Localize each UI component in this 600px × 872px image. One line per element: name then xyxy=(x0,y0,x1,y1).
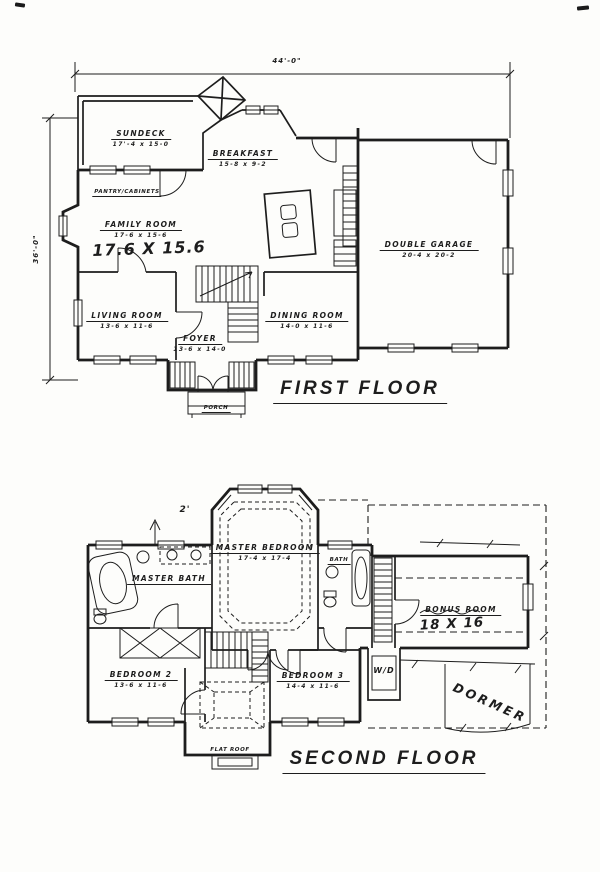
master-bedroom-name: MASTER BEDROOM xyxy=(211,543,320,554)
first-floor-title: FIRST FLOOR xyxy=(273,378,447,404)
overall-width-dimension: 44'-0" xyxy=(272,57,301,65)
sundeck-name: SUNDECK xyxy=(111,129,171,140)
double-garage-size: 20-4 x 20-2 xyxy=(380,252,479,259)
flat-roof-dashed xyxy=(200,682,264,728)
living-room-name: LIVING ROOM xyxy=(86,311,168,322)
bedroom-3-name: BEDROOM 3 xyxy=(277,671,350,682)
tray-ceiling-dashed xyxy=(220,502,310,630)
bedroom-3-size: 14-4 x 11-6 xyxy=(277,683,350,690)
room-label-breakfast: BREAKFAST 15-8 x 9-2 xyxy=(208,141,278,168)
living-room-size: 13-6 x 11-6 xyxy=(86,323,168,330)
room-label-bedroom-3: BEDROOM 3 14-4 x 11-6 xyxy=(277,663,350,690)
laundry-closet-label: W/D xyxy=(373,666,394,675)
second-floor-title: SECOND FLOOR xyxy=(282,748,485,774)
bedroom-2-name: BEDROOM 2 xyxy=(105,670,178,681)
porch-name: PORCH xyxy=(202,405,231,413)
overall-depth-dimension: 36'-0" xyxy=(32,234,40,263)
floor-plan-linework xyxy=(0,0,600,872)
sundeck-size: 17'-4 x 15-0 xyxy=(111,141,171,148)
flat-roof-text: FLAT ROOF xyxy=(208,747,251,755)
floor-plan-sheet: { "drawing": { "ink_color": "#1d1d1d", "… xyxy=(0,0,600,872)
room-label-master-bath: MASTER BATH xyxy=(127,566,211,585)
room-label-bedroom-2: BEDROOM 2 13-6 x 11-6 xyxy=(105,662,178,689)
room-label-living-room: LIVING ROOM 13-6 x 11-6 xyxy=(86,303,168,330)
room-label-sundeck: SUNDECK 17'-4 x 15-0 xyxy=(111,121,171,148)
porch-roof-tab xyxy=(212,755,258,769)
bay-offset-annotation: 2' xyxy=(179,505,190,515)
doors xyxy=(118,138,496,392)
family-room-handwritten-size: 17.6 X 15.6 xyxy=(92,237,206,260)
breakfast-name: BREAKFAST xyxy=(208,149,278,160)
master-bath-name: MASTER BATH xyxy=(127,574,211,585)
double-garage-name: DOUBLE GARAGE xyxy=(380,240,479,251)
room-label-porch: PORCH xyxy=(202,394,231,413)
master-bedroom-size: 17-4 x 17-4 xyxy=(211,555,320,562)
family-room-name: FAMILY ROOM xyxy=(100,220,182,231)
breakfast-size: 15-8 x 9-2 xyxy=(208,161,278,168)
bonus-room-handwritten-size: 18 X 16 xyxy=(419,614,484,633)
bedroom-2-size: 13-6 x 11-6 xyxy=(105,682,178,689)
closet-bifold xyxy=(120,628,200,658)
room-label-bonus-room: BONUS ROOM xyxy=(420,597,501,616)
foyer-size: 13-6 x 14-0 xyxy=(173,346,226,353)
flat-roof-annotation: FLAT ROOF xyxy=(208,736,251,755)
bonus-room-name: BONUS ROOM xyxy=(420,605,501,616)
pantry-note-text: PANTRY/CABINETS xyxy=(92,189,161,197)
room-label-double-garage: DOUBLE GARAGE 20-4 x 20-2 xyxy=(380,232,479,259)
room-label-family-room: FAMILY ROOM 17-6 x 15-6 xyxy=(100,212,182,239)
kitchen-fixtures xyxy=(264,190,356,266)
doors-2f xyxy=(154,600,419,714)
room-label-dining-room: DINING ROOM 14-0 x 11-6 xyxy=(265,303,348,330)
foyer-name: FOYER xyxy=(178,334,222,345)
room-label-foyer: FOYER 13-6 x 14-0 xyxy=(173,326,226,353)
pantry-note: PANTRY/CABINETS xyxy=(92,178,161,197)
bath-name: BATH xyxy=(328,557,351,565)
room-label-master-bedroom: MASTER BEDROOM 17-4 x 17-4 xyxy=(211,535,320,562)
room-label-bath: BATH xyxy=(328,546,351,565)
dining-room-size: 14-0 x 11-6 xyxy=(265,323,348,330)
dining-room-name: DINING ROOM xyxy=(265,311,348,322)
